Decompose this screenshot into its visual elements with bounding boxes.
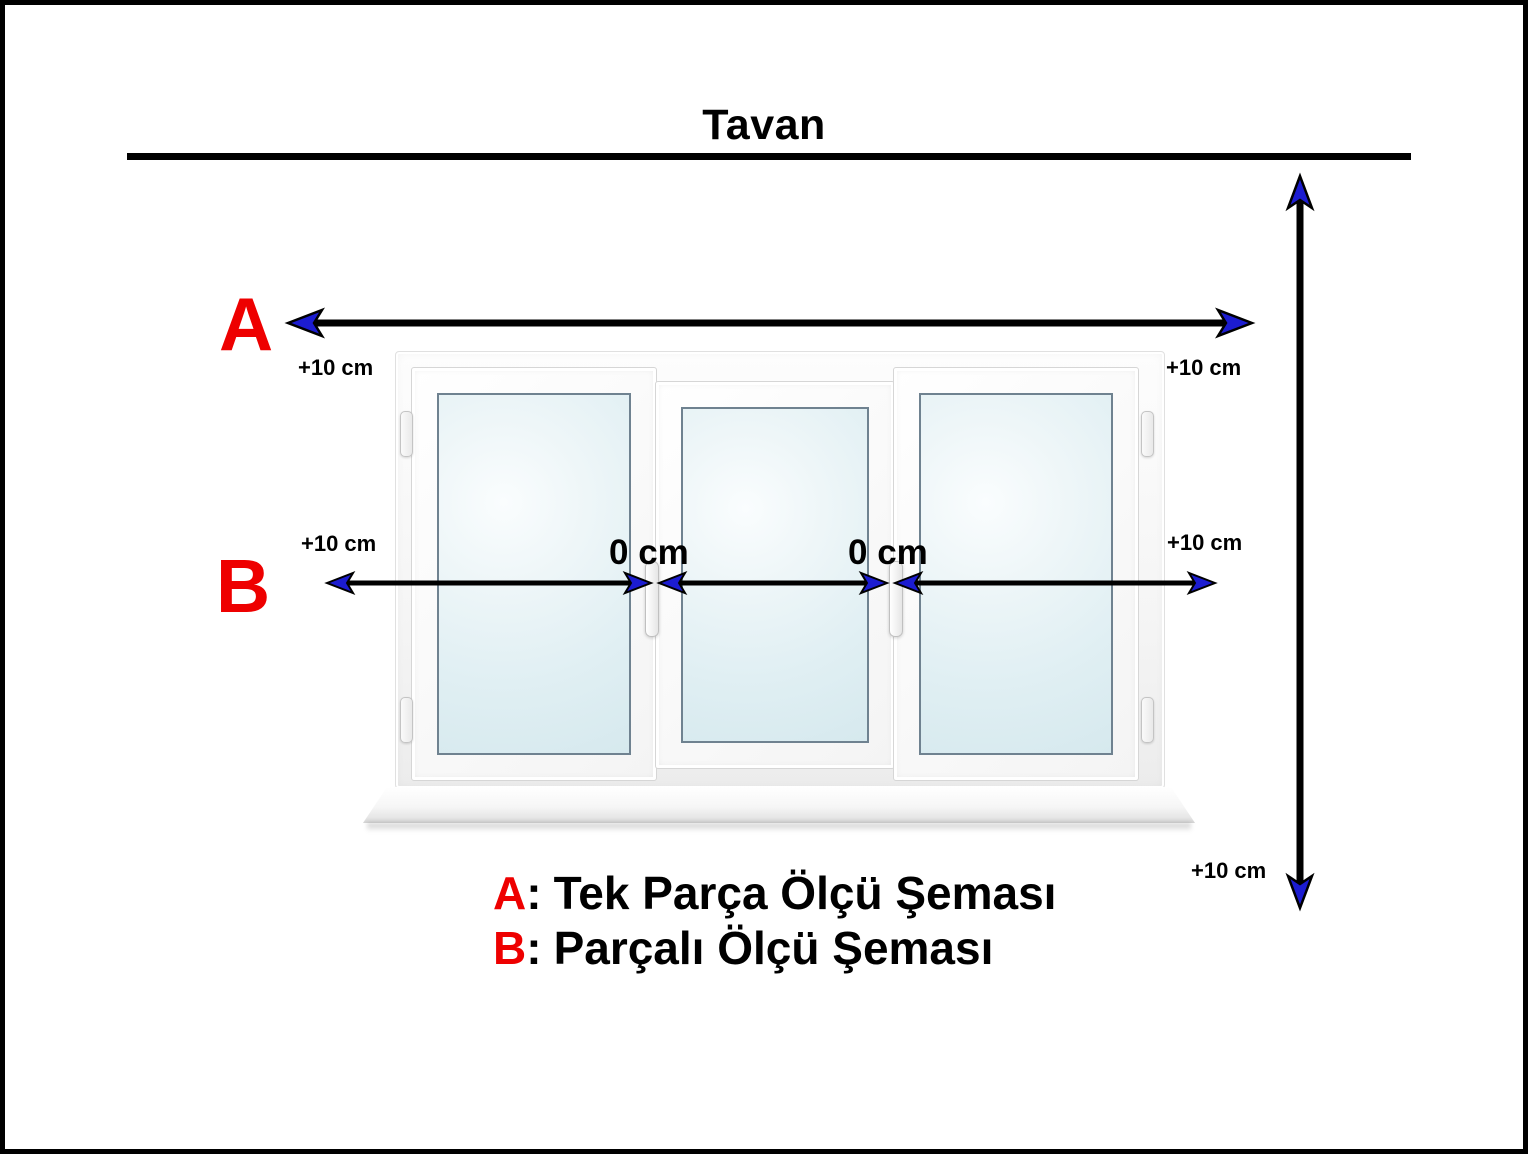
legend-a-text: Tek Parça Ölçü Şeması	[554, 867, 1057, 919]
legend-line-a: A:Tek Parça Ölçü Şeması	[493, 866, 1056, 921]
diagram-canvas: Tavan	[0, 0, 1528, 1154]
gap-label-left: 0 cm	[609, 535, 689, 570]
arrow-b-segment-left	[327, 573, 651, 593]
arrow-a-full-width	[288, 310, 1252, 336]
offset-a-left: +10 cm	[298, 357, 373, 379]
legend-a-key: A	[493, 867, 526, 919]
legend-b-key: B	[493, 922, 526, 974]
arrow-height-vertical	[1288, 176, 1312, 908]
legend-b-text: Parçalı Ölçü Şeması	[554, 922, 994, 974]
legend-line-b: B:Parçalı Ölçü Şeması	[493, 921, 1056, 976]
scheme-b-letter: B	[216, 549, 270, 624]
arrow-b-segment-middle	[659, 573, 887, 593]
offset-b-right: +10 cm	[1167, 532, 1242, 554]
gap-label-right: 0 cm	[848, 535, 928, 570]
legend-b-colon: :	[526, 922, 541, 974]
arrow-b-segment-right	[895, 573, 1215, 593]
legend-a-colon: :	[526, 867, 541, 919]
legend: A:Tek Parça Ölçü Şeması B:Parçalı Ölçü Ş…	[493, 866, 1056, 976]
offset-a-right: +10 cm	[1166, 357, 1241, 379]
offset-b-left: +10 cm	[301, 533, 376, 555]
scheme-a-letter: A	[219, 287, 273, 362]
offset-height-bottom: +10 cm	[1191, 860, 1266, 882]
